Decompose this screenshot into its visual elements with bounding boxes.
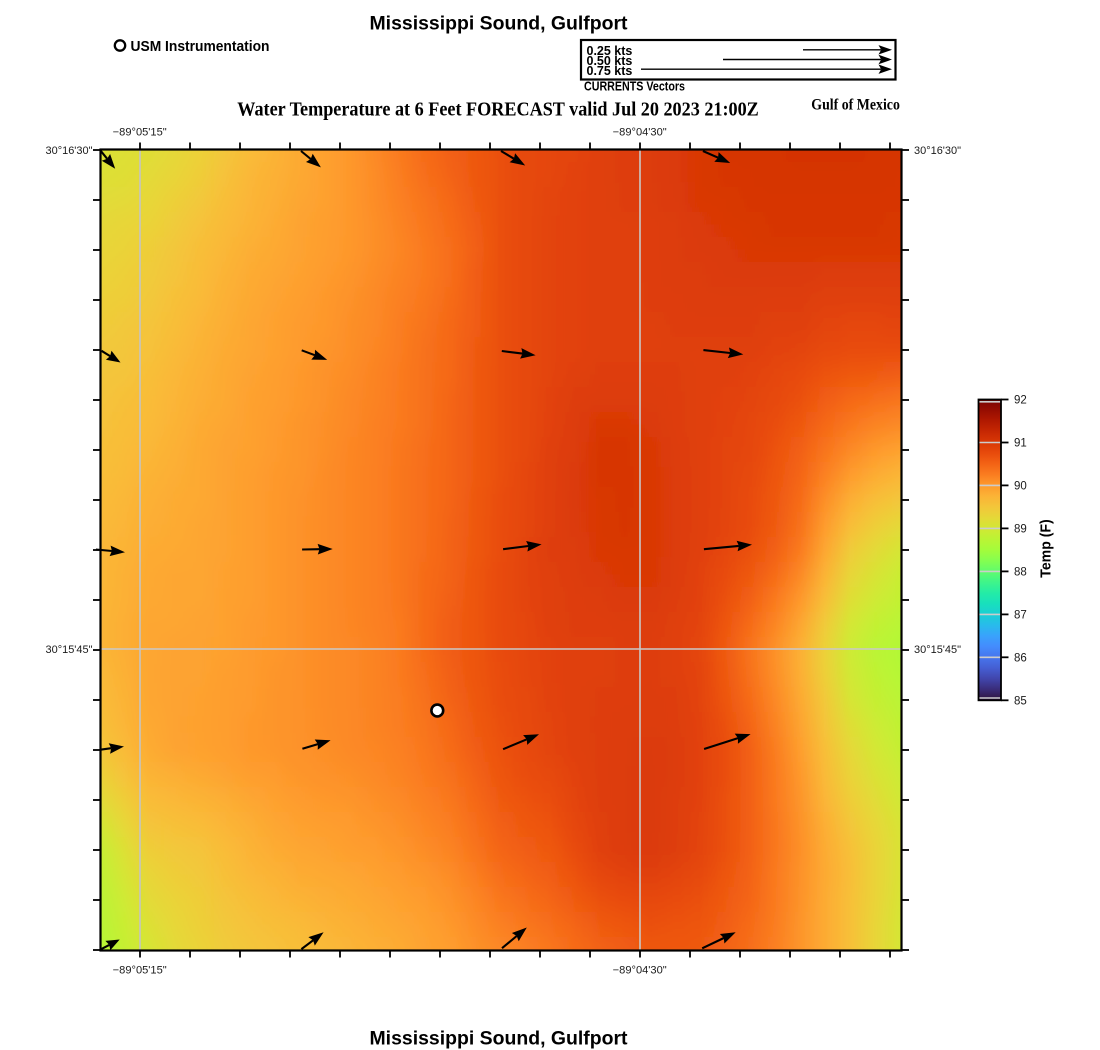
svg-text:30°15'45": 30°15'45" [46,644,93,656]
svg-text:USM Instrumentation: USM Instrumentation [131,38,270,55]
svg-text:92: 92 [1014,395,1027,407]
svg-text:30°15'45": 30°15'45" [914,644,961,656]
svg-text:90: 90 [1014,481,1027,493]
svg-text:85: 85 [1014,695,1027,707]
svg-text:30°16'30": 30°16'30" [46,145,93,157]
svg-text:91: 91 [1014,438,1027,450]
svg-text:Gulf of Mexico: Gulf of Mexico [811,97,900,114]
svg-text:88: 88 [1014,567,1027,579]
svg-text:Mississippi Sound, Gulfport: Mississippi Sound, Gulfport [370,1027,629,1049]
svg-text:−89°05'15": −89°05'15" [113,126,167,138]
svg-text:87: 87 [1014,610,1027,622]
svg-text:−89°05'15": −89°05'15" [113,964,167,976]
svg-text:Temp (F): Temp (F) [1038,519,1055,578]
svg-text:0.75 kts: 0.75 kts [587,64,633,78]
svg-text:86: 86 [1014,652,1027,664]
svg-text:Water Temperature at 6 Feet FO: Water Temperature at 6 Feet FORECAST val… [237,99,759,120]
svg-text:30°16'30": 30°16'30" [914,145,961,157]
svg-text:−89°04'30": −89°04'30" [613,126,667,138]
svg-text:−89°04'30": −89°04'30" [613,964,667,976]
svg-text:CURRENTS Vectors: CURRENTS Vectors [584,80,685,94]
svg-text:Mississippi Sound, Gulfport: Mississippi Sound, Gulfport [370,12,629,34]
svg-text:89: 89 [1014,524,1027,536]
